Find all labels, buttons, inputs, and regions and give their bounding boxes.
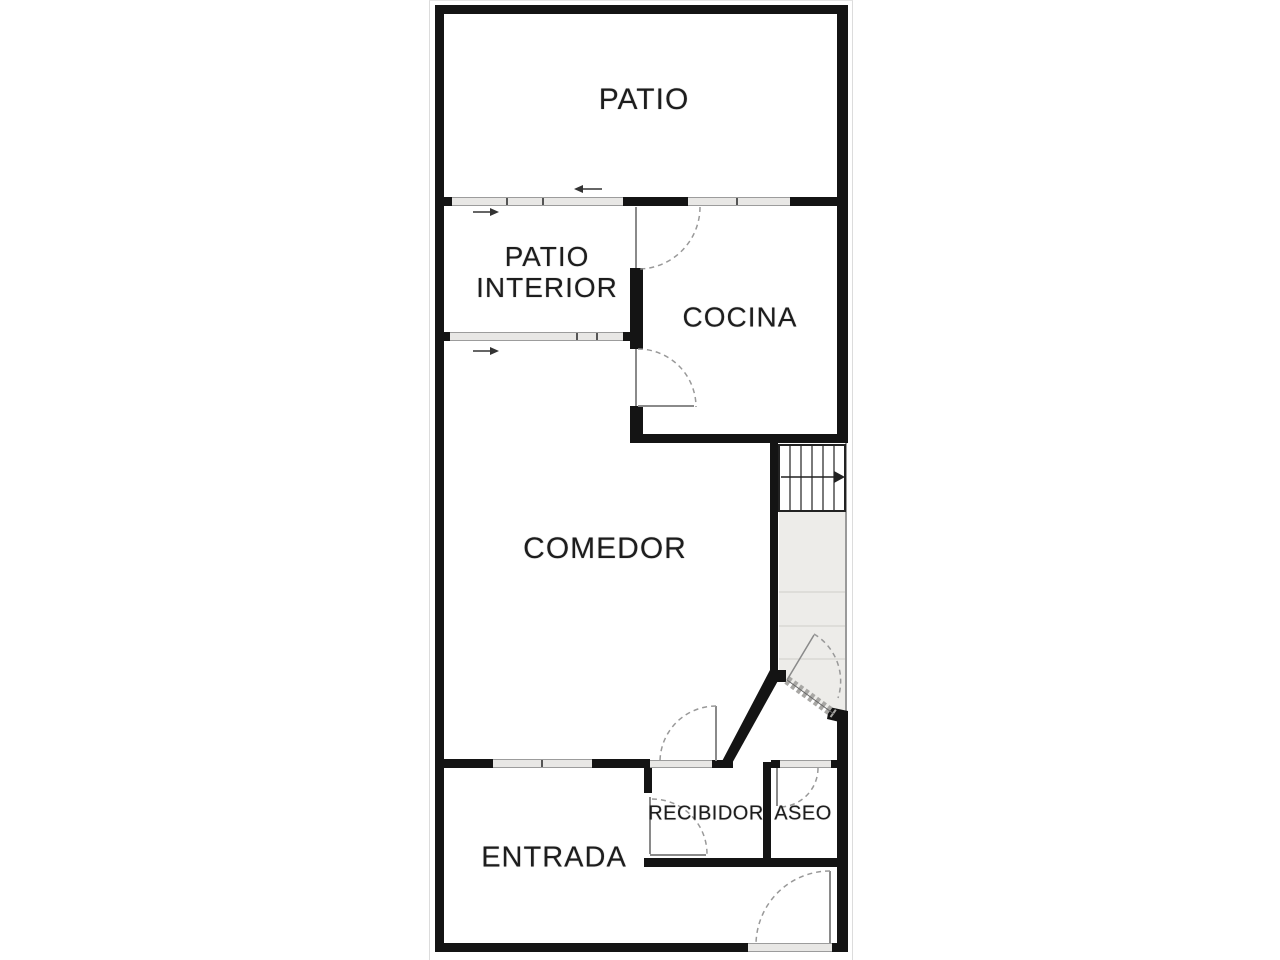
window-arrow-patio-interior-bottom	[473, 347, 499, 355]
window-arrow-patio	[574, 185, 602, 193]
room-label-cocina: COCINA	[683, 302, 798, 333]
room-label-comedor: COMEDOR	[523, 532, 687, 566]
arc-entrance-door	[756, 871, 830, 945]
room-label-patio: PATIO	[599, 83, 690, 117]
room-label-patio-interior: PATIO INTERIOR	[457, 241, 637, 303]
room-label-recibidor: RECIBIDOR	[648, 803, 764, 826]
floorplan-canvas: PATIO PATIO INTERIOR COCINA COMEDOR RECI…	[0, 0, 1280, 960]
arc-comedor-door	[660, 706, 716, 762]
wall-diagonal-junction	[770, 670, 786, 682]
room-label-aseo: ASEO	[774, 803, 832, 826]
window-arrow-patio-interior-top	[473, 208, 499, 216]
wall-diagonal-left	[719, 670, 784, 767]
arc-cocina-bottom-door	[638, 349, 696, 407]
arc-cocina-top-door	[638, 207, 700, 269]
plan-overlay	[0, 0, 1280, 960]
arc-aseo-door	[779, 768, 818, 807]
room-label-entrada: ENTRADA	[481, 842, 627, 875]
